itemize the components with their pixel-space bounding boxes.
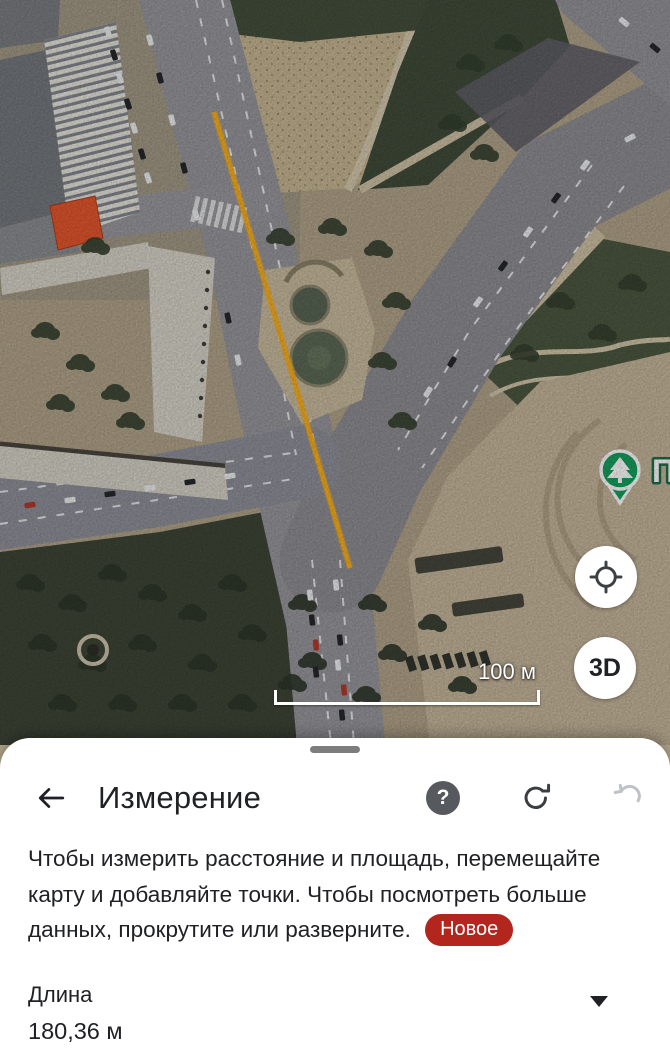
help-button[interactable]: ? xyxy=(426,781,460,815)
my-location-button[interactable] xyxy=(575,546,637,608)
help-icon: ? xyxy=(426,781,460,815)
undo-icon xyxy=(613,782,645,814)
refresh-icon xyxy=(520,782,552,814)
satellite-map-image: П xyxy=(0,0,670,745)
undo-button[interactable] xyxy=(612,781,646,815)
instructions-body: Чтобы измерить расстояние и площадь, пер… xyxy=(28,846,600,942)
back-arrow-icon xyxy=(36,783,66,813)
scale-bar: 100 м xyxy=(274,664,540,705)
sheet-drag-handle[interactable] xyxy=(310,746,360,753)
satellite-grain xyxy=(0,0,670,745)
back-button[interactable] xyxy=(34,781,68,815)
instructions-text: Чтобы измерить расстояние и площадь, пер… xyxy=(28,841,642,948)
page-title: Измерение xyxy=(98,780,261,816)
3d-button[interactable]: 3D xyxy=(574,637,636,699)
scale-label: 100 м xyxy=(478,659,536,685)
length-label: Длина xyxy=(28,982,642,1008)
chevron-down-icon[interactable] xyxy=(590,996,608,1007)
measure-bottom-sheet: Измерение ? Чтобы измерить расстояние и … xyxy=(0,738,670,1063)
sheet-header: Измерение ? xyxy=(0,780,670,816)
restart-button[interactable] xyxy=(519,781,553,815)
new-badge: Новое xyxy=(425,914,513,946)
crosshair-icon xyxy=(589,560,623,594)
satellite-map[interactable]: П 100 м 3D xyxy=(0,0,670,745)
length-value: 180,36 м xyxy=(28,1018,642,1045)
length-row[interactable]: Длина 180,36 м xyxy=(28,982,642,1045)
3d-button-label: 3D xyxy=(589,654,621,683)
scale-bar-line xyxy=(274,690,540,705)
